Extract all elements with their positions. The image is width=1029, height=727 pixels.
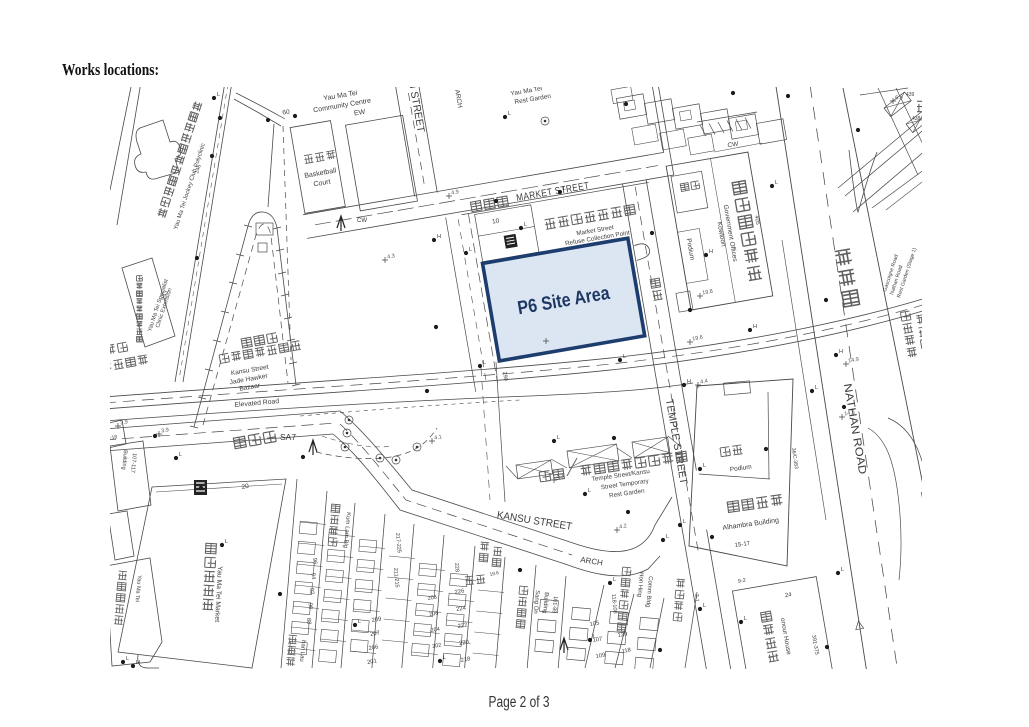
svg-text:88: 88 [305, 618, 312, 625]
svg-text:H: H [753, 324, 757, 330]
svg-text:Works locations:: Works locations: [62, 60, 159, 79]
svg-text:L: L [204, 482, 207, 488]
svg-text:H: H [136, 660, 140, 666]
svg-text:L: L [666, 534, 669, 540]
svg-text:90: 90 [307, 603, 314, 610]
svg-text:92: 92 [308, 588, 315, 595]
svg-text:H: H [687, 379, 691, 385]
svg-text:L: L [744, 616, 747, 622]
svg-text:L: L [588, 488, 591, 494]
svg-text:L: L [483, 360, 486, 366]
svg-text:438: 438 [912, 116, 921, 122]
svg-text:L: L [469, 247, 472, 253]
svg-text:L: L [443, 655, 446, 661]
svg-text:L: L [563, 186, 566, 192]
svg-text:228: 228 [453, 563, 460, 573]
svg-text:L: L [358, 619, 361, 625]
svg-text:L: L [703, 463, 706, 469]
svg-text:L: L [126, 656, 129, 662]
svg-text:H: H [709, 249, 713, 255]
svg-text:L: L [623, 354, 626, 360]
svg-text:L: L [841, 567, 844, 573]
svg-text:SA7: SA7 [280, 432, 296, 442]
svg-text:Page 2 of 3: Page 2 of 3 [489, 694, 550, 711]
svg-text:96: 96 [311, 558, 318, 565]
svg-text:L: L [524, 222, 527, 228]
svg-text:L: L [775, 180, 778, 186]
svg-text:H: H [437, 234, 441, 240]
svg-text:L: L [683, 519, 686, 525]
svg-text:CW: CW [357, 218, 367, 224]
svg-text:L: L [225, 539, 228, 545]
svg-text:L: L [217, 92, 220, 98]
svg-text:L: L [508, 111, 511, 117]
svg-text:L: L [815, 385, 818, 391]
svg-text:439: 439 [906, 92, 915, 98]
svg-text:L: L [613, 577, 616, 583]
svg-text:L: L [179, 452, 182, 458]
svg-text:L: L [703, 603, 706, 609]
svg-text:L: L [593, 634, 596, 640]
svg-text:H: H [839, 349, 843, 355]
svg-text:L: L [557, 435, 560, 441]
